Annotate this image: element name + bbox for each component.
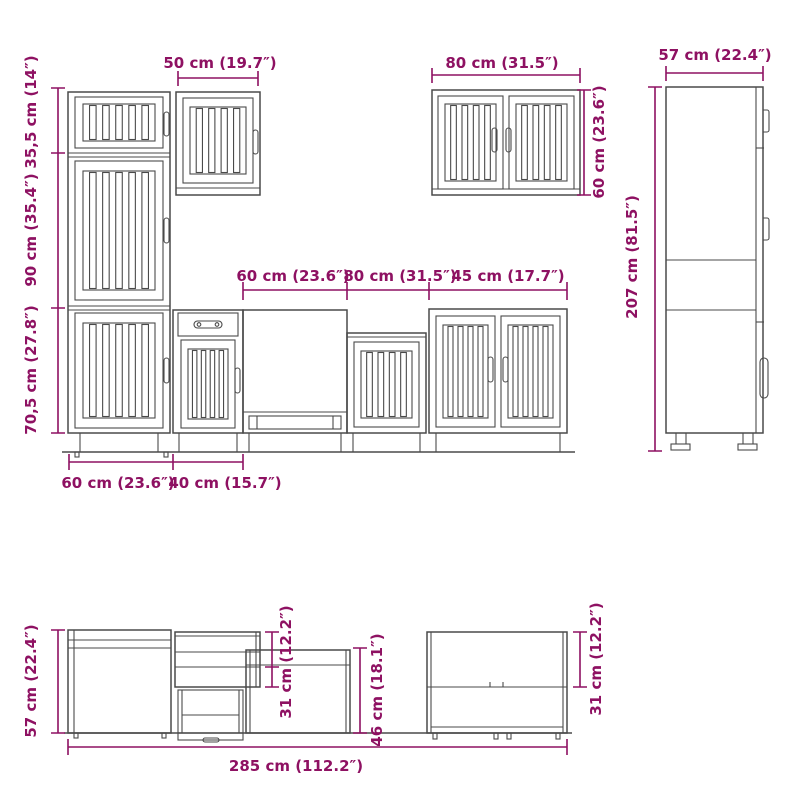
dim-line-profile-31-right [573,632,587,687]
foot [433,733,437,739]
dim-label-tall-top-height: 35,5 cm (14″) [22,55,40,168]
wall-cabinet-right-door [509,96,574,189]
door-handle [164,218,169,243]
door-handle [488,357,493,382]
dim-label-base-40: 40 cm (15.7″) [168,474,281,492]
dim-label-tall-bottom-height: 70,5 cm (27.8″) [22,305,40,434]
tall-cabinet-middle-door [75,161,163,300]
dim-line-side-height [648,87,662,451]
dimension-diagram: 50 cm (19.7″) 35,5 cm (14″) 90 cm (35.4″… [0,0,800,800]
dim-line-tall-heights [51,88,65,433]
double-base-cabinet-front [429,309,567,452]
double-cabinet-left-door [436,316,495,427]
foot [556,733,560,739]
dim-line-profile-total [68,739,567,755]
door-handle-side [760,358,768,398]
drawer-front [178,313,238,336]
dim-label-wall-width: 80 cm (31.5″) [445,54,558,72]
tall-cabinet-front [68,92,170,457]
dim-label-profile-31-right: 31 cm (12.2″) [587,602,605,715]
drawer-handle [194,321,222,328]
diagram-canvas: 50 cm (19.7″) 35,5 cm (14″) 90 cm (35.4″… [0,0,800,800]
appliance-opening-front [243,310,347,452]
upper-cabinet-50-front [176,92,260,195]
door-handle [235,368,240,393]
foot [494,733,498,739]
dimension-lines [51,66,763,755]
base-cabinet-40-front [173,310,243,452]
tall-cabinet-top-door [75,97,163,148]
drawer-handle-knob [197,323,201,327]
dim-label-profile-31-left: 31 cm (12.2″) [277,605,295,718]
wall-cabinet-front [432,90,580,195]
foot [507,733,511,739]
dim-line-profile-46 [353,648,367,733]
dim-label-profile-total: 285 cm (112.2″) [229,757,363,775]
dim-label-row-60: 60 cm (23.6″) [236,267,349,285]
dimension-labels: 50 cm (19.7″) 35,5 cm (14″) 90 cm (35.4″… [22,46,772,775]
dim-line-side-depth [666,66,763,81]
dim-label-profile-height: 57 cm (22.4″) [22,624,40,737]
dim-line-bottom-widths [69,454,243,470]
dim-line-profile-height [51,630,65,733]
hinge-icon [763,110,769,132]
profile-view [64,630,572,742]
dim-label-side-height: 207 cm (81.5″) [623,195,641,319]
door-handle [164,358,169,383]
dim-label-50-width: 50 cm (19.7″) [163,54,276,72]
dim-label-row-80: 80 cm (31.5″) [343,267,456,285]
plinth-drawer [178,733,243,740]
dim-line-wall-height [577,90,591,195]
dim-label-wall-height: 60 cm (23.6″) [590,85,608,198]
door-handle [164,112,169,136]
sink-cabinet-door [354,342,419,427]
dim-label-side-depth: 57 cm (22.4″) [658,46,771,64]
adjustable-foot [671,433,690,450]
dim-line-50-width [178,71,258,86]
drawer-handle-knob [215,323,219,327]
wall-cabinet-left-door [438,96,503,189]
tall-cabinet-side [666,87,769,450]
tall-cabinet-bottom-door [75,313,163,428]
door-handle [503,357,508,382]
dim-label-base-60: 60 cm (23.6″) [61,474,174,492]
adjustable-foot [738,433,757,450]
double-cabinet-right-door [501,316,560,427]
upper-cabinet-door [183,98,253,183]
door-handle [253,130,258,154]
base-cabinet-40-door [181,340,235,428]
dim-label-tall-mid-height: 90 cm (35.4″) [22,173,40,286]
dim-label-profile-46: 46 cm (18.1″) [368,633,386,746]
dim-label-row-45: 45 cm (17.7″) [451,267,564,285]
hinge-icon [763,218,769,240]
sink-cabinet-front [347,333,426,452]
